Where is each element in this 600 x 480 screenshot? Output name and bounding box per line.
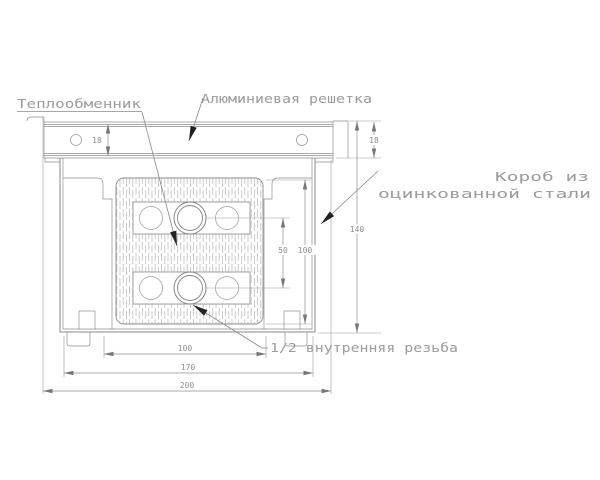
pipe-bottom-outer xyxy=(174,272,206,304)
dim-overall-height: 140 xyxy=(345,121,369,333)
label-heat-exchanger: Теплообменник xyxy=(17,97,142,111)
box-foot-left xyxy=(67,332,90,346)
leader-steel-box xyxy=(321,171,378,224)
box-inner-shelf-left xyxy=(63,178,112,329)
label-steel-box-line2: оцинкованной стали xyxy=(378,187,591,201)
leader-aluminum-grille xyxy=(189,98,203,141)
mounting-bracket-left xyxy=(79,311,95,329)
dim-text-box-width: 170 xyxy=(181,363,196,372)
dim-text-core-height: 100 xyxy=(298,246,313,255)
tube-row-bottom xyxy=(133,272,290,304)
drawing-canvas: 18 18 140 100 50 100 170 xyxy=(0,0,600,480)
callouts: Теплообменник Алюминиевая решетка Короб … xyxy=(17,92,591,355)
grille-left-cap-and-hook xyxy=(27,117,44,158)
grille-face-lines xyxy=(44,122,333,158)
dim-text-core-width: 100 xyxy=(178,344,193,353)
box-top-steps xyxy=(45,158,333,162)
dim-pipe-spacing: 50 xyxy=(274,218,292,288)
dim-core-width: 100 xyxy=(104,344,266,354)
convector-technical-drawing: 18 18 140 100 50 100 170 xyxy=(0,0,600,480)
callout-steel-box: Короб из оцинкованной стали xyxy=(321,170,591,224)
dim-grille-height-left: 18 xyxy=(92,124,108,156)
dim-text-overall-width: 200 xyxy=(180,381,195,390)
tube-row-top xyxy=(133,202,290,234)
dim-text-overall-height: 140 xyxy=(350,225,365,234)
callout-aluminum-grille: Алюминиевая решетка xyxy=(189,92,372,141)
pipe-top-outer xyxy=(174,202,206,234)
dim-text-grille-height-left: 18 xyxy=(92,136,102,145)
grille-right-cap-and-step xyxy=(333,121,348,158)
label-thread: 1/2 внутренняя резьба xyxy=(270,341,458,355)
label-steel-box-line1: Короб из xyxy=(495,170,589,184)
mounting-bracket-right xyxy=(284,311,300,329)
dim-core-height: 100 xyxy=(293,180,317,324)
grille-hole-right xyxy=(297,135,308,146)
dim-overall-width: 200 xyxy=(43,381,331,391)
dim-grille-height-right: 18 xyxy=(366,122,382,158)
dim-box-width: 170 xyxy=(64,363,313,373)
aluminum-grille xyxy=(27,117,348,158)
dim-text-pipe-spacing: 50 xyxy=(278,246,288,255)
label-aluminum-grille: Алюминиевая решетка xyxy=(201,92,372,106)
grille-hole-left xyxy=(71,135,82,146)
dim-text-grille-height-right: 18 xyxy=(369,136,379,145)
